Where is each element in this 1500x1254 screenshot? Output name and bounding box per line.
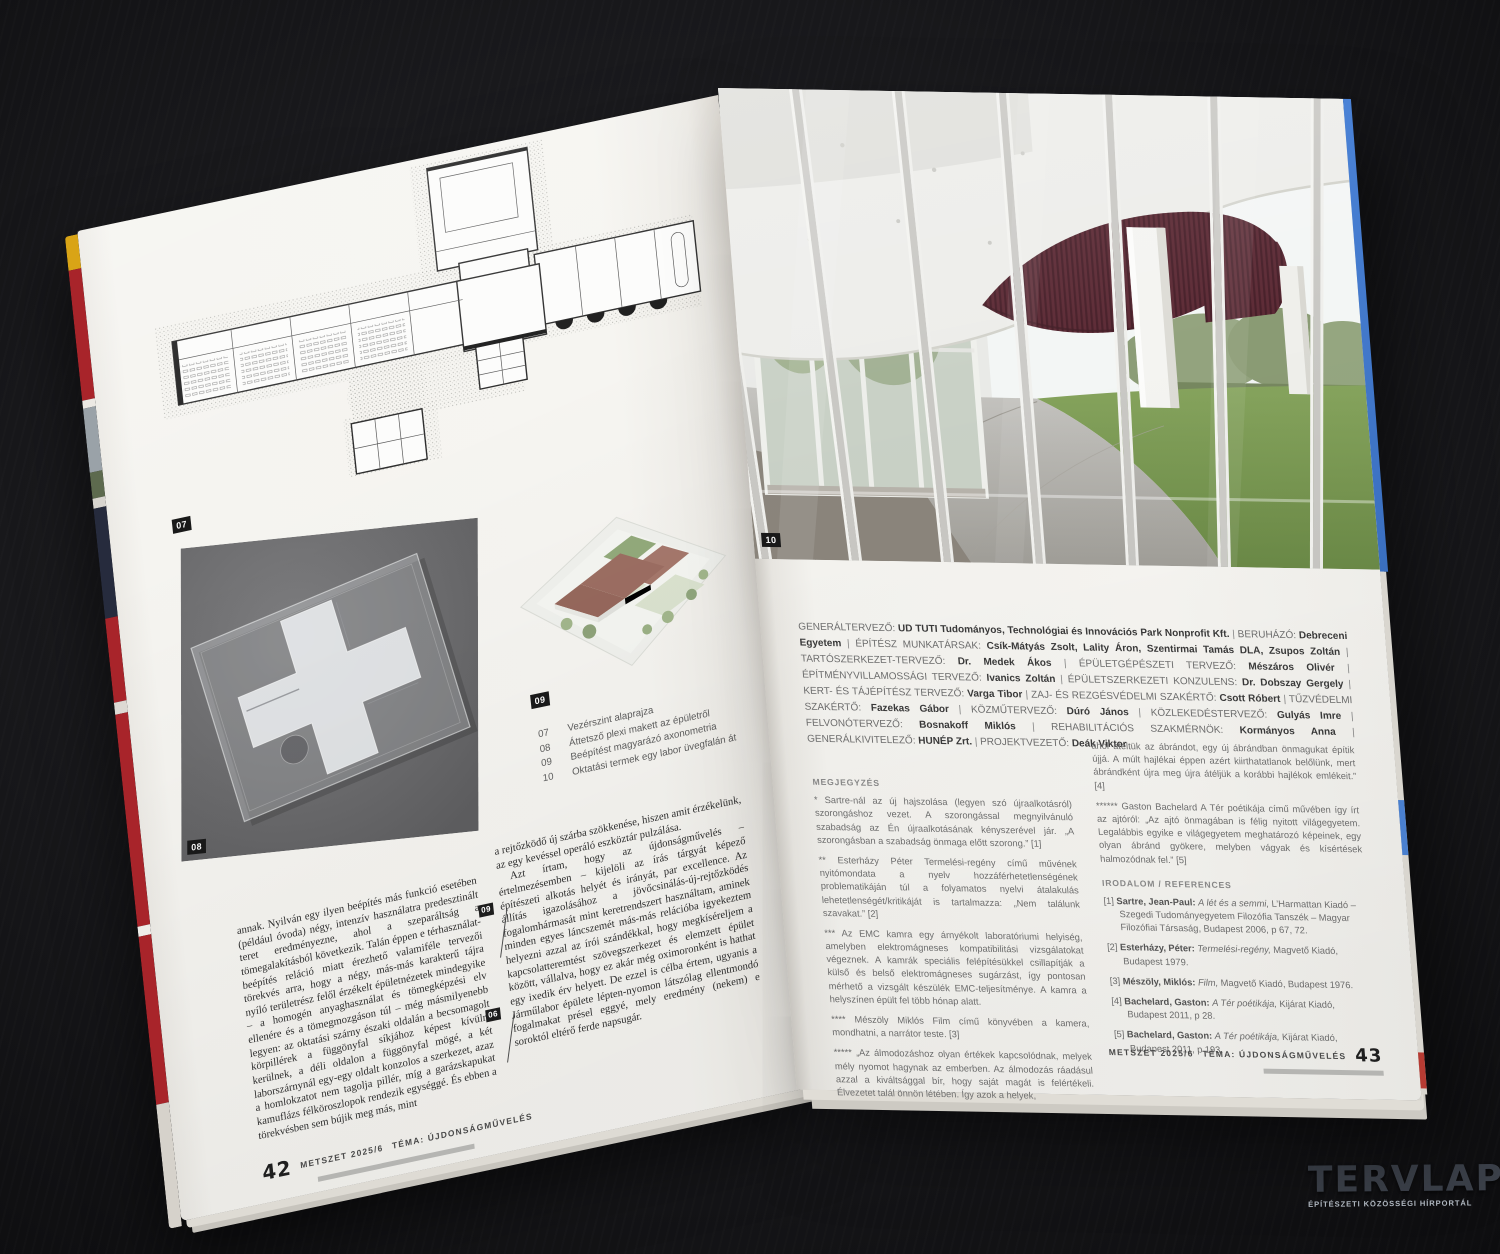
- figure-caption-list: 07Vezérszint alaprajza08Áttetsző plexi m…: [538, 679, 777, 787]
- figure-building-photo: 10: [718, 88, 1380, 570]
- figure-label-07: 07: [172, 516, 192, 534]
- note-paragraph: ** Esterházy Péter Termelési-regény című…: [818, 854, 1081, 925]
- axonometric-drawing: [509, 491, 739, 694]
- credit-entry: FELVONÓTERVEZŐ: Bosnakoff Miklós: [805, 718, 1016, 733]
- project-credits: GENERÁLTERVEZŐ: UD TUTI Tudományos, Tech…: [798, 619, 1357, 757]
- magazine-page-right: 10 GENERÁLTERVEZŐ: UD TUTI Tudományos, T…: [718, 88, 1422, 1100]
- figure-plexi-model-photo: 08: [181, 518, 479, 862]
- credit-entry: KÖZMŰTERVEZŐ: Dúró János: [971, 705, 1129, 719]
- watermark-tagline: ÉPÍTÉSZETI KÖZÖSSÉGI HÍRPORTÁL: [1308, 1198, 1500, 1210]
- notes-list: * Sartre-nál az új hajszolása (legyen sz…: [814, 794, 1096, 1104]
- note-paragraph: ***** „Az álmodozáshoz olyan értékek kap…: [833, 1047, 1095, 1104]
- figure-label-09: 09: [530, 691, 550, 709]
- marker-leader-line: [507, 1013, 514, 1062]
- figure-axonometric: [509, 491, 739, 694]
- page-number: 42: [261, 1155, 293, 1185]
- reference-item: [1] Sartre, Jean-Paul: A lét és a semmi,…: [1103, 895, 1369, 939]
- article-column-2: a rejtőzködő új szárba szökkenése, hisze…: [494, 794, 762, 1051]
- article-column-1: annak. Nyilván egy ilyen beépítés más fu…: [236, 874, 499, 1143]
- page-number: 43: [1354, 1045, 1383, 1067]
- glass-facade-photo: [718, 88, 1380, 570]
- credit-entry: ÉPÜLETGÉPÉSZETI TERVEZŐ: Mészáros Olivér: [1079, 658, 1336, 673]
- note-paragraph: **** Mészöly Miklós Film című könyvében …: [831, 1013, 1091, 1044]
- credit-entry: TARTÓSZERKEZET-TERVEZŐ: Dr. Medek Ákos: [800, 654, 1051, 669]
- credit-entry: REHABILITÁCIÓS SZAKMÉRNÖK: Kormányos Ann…: [1051, 722, 1336, 738]
- marker-leader-line: [500, 909, 507, 958]
- credit-entry: ÉPÜLETSZERKEZETI KONZULENS: Dr. Dobszay …: [1067, 674, 1344, 690]
- credit-entry: KERT- ÉS TÁJÉPÍTÉSZ TERVEZŐ: Varga Tibor: [803, 686, 1023, 701]
- footer-bar: [1263, 1069, 1383, 1076]
- note-paragraph: ****** Gaston Bachelard A Tér poétikája …: [1096, 799, 1364, 870]
- credit-entry: ÉPÍTMÉNYVILLAMOSSÁGI TERVEZŐ: Ivanics Zo…: [802, 670, 1056, 685]
- credit-entry: GENERÁLKIVITELEZŐ: HUNÉP Zrt.: [807, 734, 973, 748]
- watermark-logo: TERVLAP: [1308, 1161, 1500, 1199]
- credit-entry: GENERÁLTERVEZŐ: UD TUTI Tudományos, Tech…: [798, 621, 1230, 640]
- page-footer-right: METSZET 2025/6TÉMA: ÚJDONSÁGMŰVELÉS43: [1099, 1043, 1384, 1076]
- references-title: IRODALOM / REFERENCES: [1102, 877, 1366, 894]
- reference-item: [3] Mészöly, Miklós: Film, Magvető Kiadó…: [1109, 975, 1373, 993]
- references-list: [1] Sartre, Jean-Paul: A lét és a semmi,…: [1103, 895, 1379, 1060]
- issue-theme: TÉMA: ÚJDONSÁGMŰVELÉS: [392, 1111, 534, 1151]
- photo-watermark: TERVLAP ÉPÍTÉSZETI KÖZÖSSÉGI HÍRPORTÁL: [1308, 1161, 1500, 1210]
- figure-label-08: 08: [187, 838, 206, 855]
- note-paragraph: *** Az EMC kamra egy árnyékolt laboratór…: [824, 927, 1088, 1011]
- note-paragraph: * Sartre-nál az új hajszolása (legyen sz…: [814, 794, 1076, 851]
- references-column: ahol átéltük az ábrándot, egy új ábrándb…: [1091, 740, 1379, 1067]
- note-paragraph: ahol átéltük az ábrándot, egy új ábrándb…: [1091, 740, 1358, 797]
- notes-continuation: ahol átéltük az ábrándot, egy új ábrándb…: [1091, 740, 1364, 870]
- reference-item: [4] Bachelard, Gaston: A Tér poétikája, …: [1111, 995, 1376, 1026]
- notes-title: MEGJEGYZÉS: [812, 776, 1071, 793]
- credit-entry: KÖZLEKEDÉSTERVEZŐ: Gulyás Imre: [1150, 708, 1341, 722]
- issue-theme: TÉMA: ÚJDONSÁGMŰVELÉS: [1202, 1048, 1347, 1061]
- figure-label-10: 10: [761, 533, 781, 548]
- journal-name: METSZET 2025/6: [1108, 1047, 1194, 1058]
- magazine-page-left: 07 08: [77, 95, 822, 1221]
- reference-item: [2] Esterházy, Péter: Termelési-regény, …: [1107, 941, 1372, 972]
- plexi-model-image: [181, 518, 479, 862]
- article-paragraph: annak. Nyilván egy ilyen beépítés más fu…: [236, 874, 499, 1143]
- notes-column: MEGJEGYZÉS * Sartre-nál az új hajszolása…: [812, 776, 1096, 1111]
- credit-entry: ZAJ- ÉS REZGÉSVÉDELMI SZAKÉRTŐ: Csott Ró…: [1031, 690, 1281, 705]
